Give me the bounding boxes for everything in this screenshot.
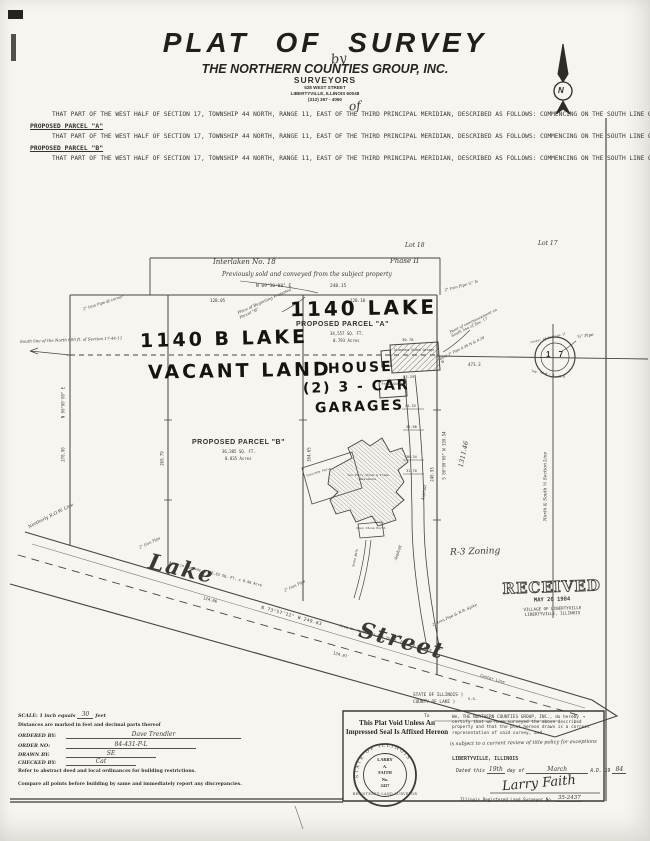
segment-b-dim: 128.05: [210, 298, 225, 303]
dated-row: Dated this 19th day of March A.D. 19 84: [456, 767, 626, 774]
license-number: 35-2437: [556, 795, 582, 802]
checked-by-row: CHECKED BY: Cat: [18, 759, 136, 766]
order-no-label: ORDER NO:: [18, 743, 66, 749]
dated-month: March: [526, 767, 588, 774]
state-line-1: STATE OF ILLINOIS ): [413, 693, 463, 698]
drive-dim-1: 34.33: [405, 404, 416, 408]
seal-name-1: LARRY: [365, 757, 405, 762]
west-line-dim: 270.00: [61, 395, 66, 515]
address-1140b-lake: 1140 B LAKE: [140, 326, 309, 352]
east-line-dim: 240.93: [430, 415, 435, 535]
plat-of-survey-page: PLAT OF SURVEY by THE NORTHERN COUNTIES …: [0, 0, 650, 841]
zoning-note: R-3 Zoning: [450, 546, 501, 558]
lot-17-label: Lot 17: [538, 240, 558, 247]
parcel-b-west-dim: 269.79: [160, 399, 165, 519]
phase-label: Phase II: [390, 257, 419, 265]
ordered-by-value: Dave Trendler: [66, 732, 241, 739]
checked-by-label: CHECKED BY:: [18, 760, 66, 766]
parcel-b-area-sf: 36,385 SQ. FT.: [222, 449, 256, 454]
dated-ad: A.D. 19: [590, 769, 610, 774]
parcel-a-area-sf: 34,557 SQ. FT.: [330, 331, 364, 336]
drawn-by-value: SE: [66, 751, 156, 758]
garage-2-label: Frame Garage: [381, 383, 405, 387]
address-1140-lake: 1140 LAKE: [290, 295, 437, 322]
garage-1-dim-top: 30.70: [402, 337, 413, 342]
dim-473: 473.3: [468, 362, 481, 367]
parcel-b-area-acres: 0.835 Acres: [225, 456, 252, 461]
seal-name-3: FAITH: [365, 770, 405, 775]
parcel-b-east-dim: 304.65: [307, 395, 312, 515]
received-stamp-word: RECEIVED: [501, 576, 602, 597]
north-distance: 248.15: [330, 284, 346, 289]
ordered-by-row: ORDERED BY: Dave Trendler: [18, 732, 241, 739]
scale-unit: feet: [95, 713, 105, 719]
dated-year: 84: [612, 767, 626, 774]
parcel-a-label: PROPOSED PARCEL "A": [296, 321, 389, 328]
dated-day: 19th: [487, 767, 505, 774]
subdivision-label: Interlaken No. 18: [213, 258, 276, 266]
parcel-a-area-acres: 0.793 Acres: [333, 338, 360, 343]
seal-no-value: 2437: [365, 783, 405, 788]
dated-mid: day of: [507, 769, 524, 774]
quarter-section-line-label: North & South ¼ Section Line: [544, 427, 549, 547]
scale-label: SCALE: 1 inch equals: [18, 713, 75, 719]
section-number: 1 7: [546, 350, 564, 359]
lot-18-label: Lot 18: [405, 242, 425, 249]
void-notice-line-1: This Plat Void Unless An: [344, 719, 450, 727]
drive-dim-3: 36.34: [406, 455, 417, 459]
compare-note: Compare all points before building by sa…: [18, 782, 338, 787]
house-label-3: GARAGES: [315, 397, 405, 416]
garage-1-dim-bottom: 33.25: [403, 374, 414, 379]
drive-dim-4: 31.70: [406, 469, 417, 473]
sold-note: Previously sold and conveyed from the su…: [222, 271, 392, 278]
order-no-value: 84-431-P-L: [66, 742, 196, 749]
drawn-by-label: DRAWN BY:: [18, 752, 66, 758]
house-tiny-label: Two Story Stone & Frame Residence: [344, 474, 392, 481]
drawn-by-row: DRAWN BY: SE: [18, 751, 156, 758]
refer-note: Refer to abstract deed and local ordinan…: [18, 769, 308, 774]
east-line-bearing: S 00°00'00" W 339.54: [442, 396, 447, 516]
certification-city: LIBERTYVILLE, ILLINOIS: [452, 756, 518, 762]
state-line-2: COUNTY OF LAKE ): [413, 700, 455, 705]
license-row: Illinois Registered Land Surveyor No. 35…: [460, 795, 582, 802]
parcel-b-label: PROPOSED PARCEL "B": [192, 439, 285, 446]
north-arrow-icon: [554, 44, 572, 114]
house-label-1: HOUSE: [328, 359, 393, 377]
drive-dim-2: 30.98: [406, 425, 417, 429]
distances-note: Distances are marked in feet and decimal…: [18, 723, 161, 728]
seal-bottom-text: REGISTERED LAND SURVEYOR: [350, 792, 420, 796]
void-notice-line-2: Impressed Seal Is Affixed Hereon: [341, 728, 453, 736]
seal-no-label: No.: [365, 777, 405, 782]
scale-value: 30: [77, 712, 93, 719]
porch-label: Open Stone Porch: [350, 527, 392, 531]
received-stamp: RECEIVED MAY 20 1984 VILLAGE OF LIBERTYV…: [501, 576, 602, 617]
state-ss: S.S.: [468, 696, 477, 701]
order-no-row: ORDER NO: 84-431-P-L: [18, 742, 196, 749]
certification-text: We, THE NORTHERN COUNTIES GROUP, INC., d…: [452, 715, 600, 736]
ordered-by-label: ORDERED BY:: [18, 733, 66, 739]
license-label: Illinois Registered Land Surveyor No.: [460, 797, 553, 802]
dated-prefix: Dated this: [456, 769, 485, 774]
garage-1-label: Aluminum Sided Garage: [392, 349, 436, 353]
north-arrow-label: N: [558, 86, 564, 95]
seal-name-2: A.: [365, 764, 405, 769]
checked-by-value: Cat: [66, 759, 136, 766]
scale-row: SCALE: 1 inch equals 30 feet: [18, 712, 106, 719]
